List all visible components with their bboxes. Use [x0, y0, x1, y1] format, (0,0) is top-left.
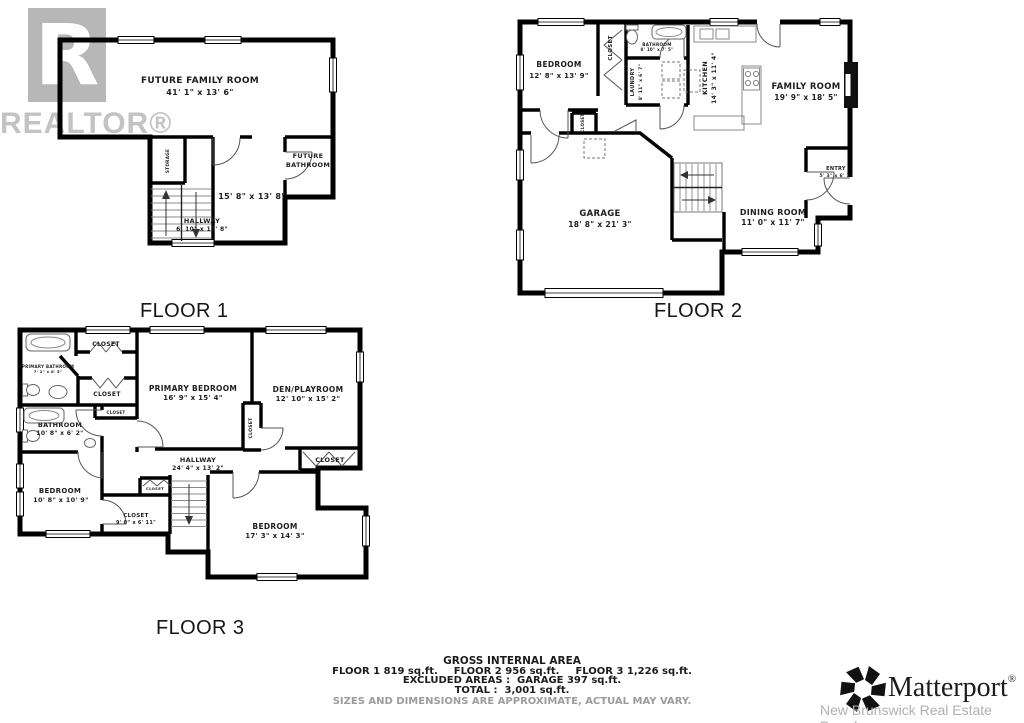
floor1-bathroom-name-2: BATHROOM — [286, 161, 330, 169]
floor2-bedroom-dims: 12' 8" x 13' 9" — [529, 72, 589, 80]
floor3-hallway-name: HALLWAY — [180, 456, 216, 464]
floor3-caption: FLOOR 3 — [156, 617, 244, 640]
floor3-closet-room-dims: 9' 0" x 6' 11" — [116, 520, 156, 526]
floor2-laundry-name: LAUNDRY — [630, 68, 636, 97]
floor2-closet-mid-name: CLOSET — [580, 114, 585, 133]
toilet-icon — [627, 30, 638, 44]
floor2-plan: BEDROOM 12' 8" x 13' 9" CLOSET BATHROOM … — [517, 19, 859, 298]
floor2-back-door-gap — [757, 19, 780, 27]
floor3-closet3-name: CLOSET — [107, 410, 126, 415]
floor2-entry-name: ENTRY — [826, 166, 846, 172]
floorplan-page: R REALTOR® FUTURE FAMILY ROOM — [0, 0, 1024, 723]
floor3-closet-right-name: CLOSET — [315, 456, 345, 464]
sink-icon — [49, 386, 67, 399]
floor2-staircase — [674, 163, 722, 212]
floor1-plan: FUTURE FAMILY ROOM 41' 1" x 13' 6" FUTUR… — [60, 37, 337, 247]
matterport-text: Matterport — [888, 672, 1008, 703]
floor2-laundry-dims: 8' 11" x 6' 7" — [638, 64, 644, 100]
floor3-labels: CLOSET PRIMARY BATHROOM 7' 2" x 8' 5" CL… — [22, 341, 345, 540]
floor3-bedroom-big-dims: 17' 3" x 14' 3" — [245, 532, 305, 540]
toilet-icon — [27, 385, 40, 396]
floor3-bedroom-left-dims: 10' 8" x 10' 9" — [33, 496, 89, 504]
floor2-garage-name: GARAGE — [579, 209, 620, 219]
floor1-storage-name: STORAGE — [165, 149, 170, 173]
water-heater-icon — [584, 139, 605, 158]
floor2-family-room-dims: 19' 9" x 18' 5" — [774, 93, 838, 102]
dryer-icon — [662, 81, 680, 98]
floor2-garage-door — [545, 289, 663, 298]
floor3-closet-room-name: CLOSET — [123, 513, 148, 519]
floor3-bathroom-dims: 10' 8" x 6' 2" — [36, 430, 83, 437]
floor3-closet-box-name: CLOSET — [146, 486, 164, 491]
floor2-caption: FLOOR 2 — [654, 300, 742, 323]
kitchen-counter-icon — [694, 116, 744, 130]
floor3-primary-bedroom-name: PRIMARY BEDROOM — [149, 384, 237, 393]
real-estate-board-watermark: New Brunswick Real Estate Board — [820, 702, 1024, 723]
floor2-front-door-gap — [847, 177, 855, 205]
floor3-bedroom-left-name: BEDROOM — [39, 487, 81, 495]
floor3-primary-bathroom-dims: 7' 2" x 8' 5" — [34, 369, 63, 374]
floor3-den-dims: 12' 10" x 15' 2" — [276, 395, 341, 403]
floor2-kitchen-name: KITCHEN — [701, 61, 709, 95]
sink-icon — [716, 29, 729, 39]
floor1-family-room-name: FUTURE FAMILY ROOM — [141, 76, 259, 86]
floor3-closet1-name: CLOSET — [92, 341, 120, 348]
floor3-closet-vert-name: CLOSET — [248, 417, 254, 439]
floor1-labels: FUTURE FAMILY ROOM 41' 1" x 13' 6" FUTUR… — [141, 76, 330, 233]
floor2-bedroom-name: BEDROOM — [536, 60, 581, 69]
floor1-hallway-name: HALLWAY — [184, 217, 220, 225]
floor2-bathroom-dims: 8' 10" x 7' 5" — [641, 47, 674, 52]
floor2-garage-dims: 18' 8" x 21' 3" — [568, 220, 632, 229]
kitchen-counter-icon — [694, 26, 756, 42]
matterport-registered-mark: ® — [1008, 673, 1016, 685]
floor1-lower-room-dims: 15' 8" x 13' 8" — [218, 192, 285, 201]
floor2-family-room-name: FAMILY ROOM — [772, 82, 841, 92]
toilet-tank-icon — [626, 25, 638, 30]
floor1-bathroom-name-1: FUTURE — [293, 152, 324, 160]
floor2-dining-dims: 11' 0" x 11' 7" — [741, 218, 805, 227]
floor3-plan: CLOSET PRIMARY BATHROOM 7' 2" x 8' 5" CL… — [17, 327, 370, 581]
matterport-wordmark: Matterport® — [888, 672, 1016, 704]
floor2-dining-name: DINING ROOM — [740, 208, 806, 217]
floor3-bedroom-big-name: BEDROOM — [252, 522, 297, 531]
floor3-den-name: DEN/PLAYROOM — [273, 385, 344, 394]
floor3-closet2-name: CLOSET — [93, 391, 121, 398]
floor2-entry-dims: 5' 3" x 6' 1" — [819, 173, 852, 179]
sink-icon — [700, 29, 713, 39]
floor3-bathroom-name: BATHROOM — [38, 421, 82, 429]
sink-icon — [85, 439, 96, 448]
floor3-staircase — [171, 481, 207, 527]
floor3-hallway-dims: 24' 4" x 13' 2" — [172, 465, 224, 472]
floor1-hallway-dims: 6' 10" x 13' 8" — [176, 226, 228, 233]
floor1-caption: FLOOR 1 — [140, 300, 228, 323]
floor2-closet-top-name: CLOSET — [608, 35, 614, 60]
floor-plan-canvas: FUTURE FAMILY ROOM 41' 1" x 13' 6" FUTUR… — [0, 0, 1024, 723]
floor3-primary-bedroom-dims: 16' 9" x 15' 4" — [163, 394, 223, 402]
washer-icon — [662, 62, 680, 79]
floor1-family-room-dims: 41' 1" x 13' 6" — [166, 88, 233, 97]
floor2-kitchen-dims: 14' 3" x 11' 4" — [711, 52, 718, 104]
